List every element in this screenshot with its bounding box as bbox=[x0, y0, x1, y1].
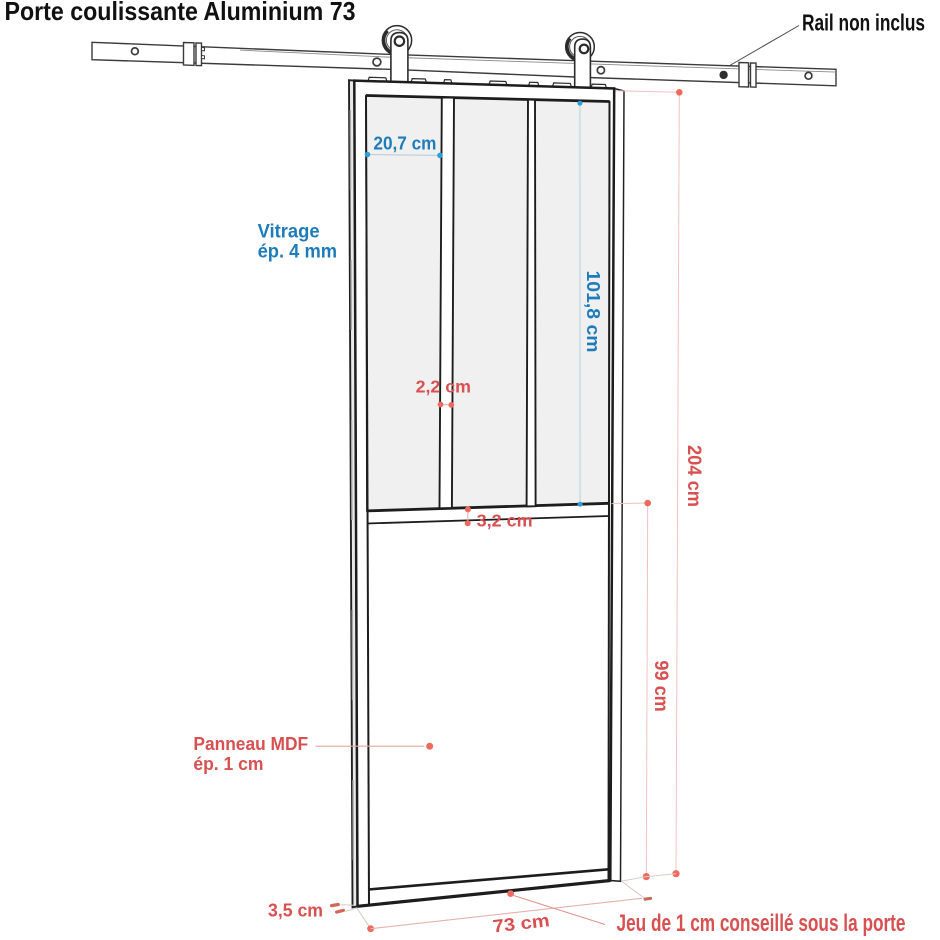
svg-text:3,5 cm: 3,5 cm bbox=[268, 900, 323, 921]
svg-text:Porte coulissante Aluminium 73: Porte coulissante Aluminium 73 bbox=[5, 0, 356, 26]
svg-text:Panneau MDF: Panneau MDF bbox=[193, 733, 308, 754]
svg-text:20,7 cm: 20,7 cm bbox=[373, 132, 436, 153]
svg-text:ép. 4 mm: ép. 4 mm bbox=[258, 242, 338, 263]
svg-text:ép. 1 cm: ép. 1 cm bbox=[193, 753, 263, 774]
svg-text:101,8 cm: 101,8 cm bbox=[583, 271, 604, 353]
svg-text:3,2 cm: 3,2 cm bbox=[477, 511, 533, 531]
svg-text:Jeu de 1 cm conseillé sous la: Jeu de 1 cm conseillé sous la porte bbox=[617, 910, 906, 937]
svg-text:99 cm: 99 cm bbox=[650, 660, 672, 711]
svg-text:204 cm: 204 cm bbox=[683, 445, 705, 507]
svg-text:Rail non inclus: Rail non inclus bbox=[802, 10, 925, 36]
svg-text:Vitrage: Vitrage bbox=[258, 222, 320, 243]
svg-text:2,2 cm: 2,2 cm bbox=[416, 377, 471, 397]
